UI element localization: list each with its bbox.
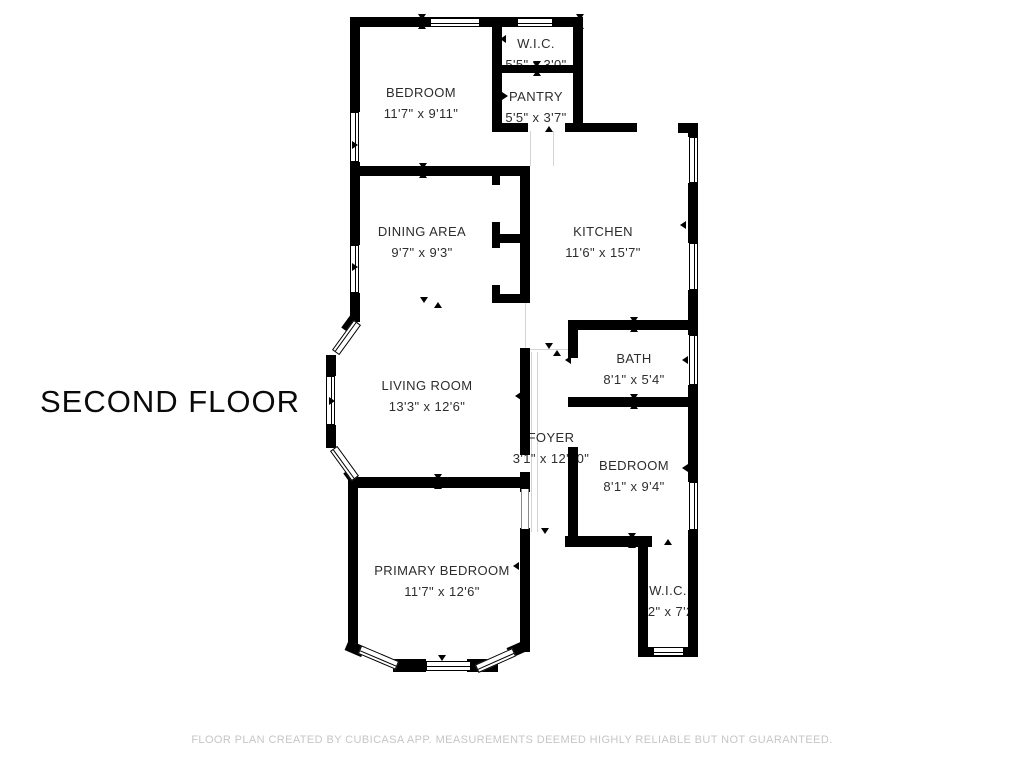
footer-disclaimer: FLOOR PLAN CREATED BY CUBICASA APP. MEAS… xyxy=(0,734,1024,746)
room-name: BATH xyxy=(603,348,664,369)
door-marker xyxy=(352,561,358,569)
opening-marker xyxy=(553,350,561,356)
window xyxy=(350,112,359,162)
window-marker xyxy=(682,464,688,472)
room-dims: 9'7" x 9'3" xyxy=(378,242,466,263)
room-name: W.I.C. xyxy=(505,33,566,54)
room-dims: 13'3" x 12'6" xyxy=(381,396,472,417)
wall-segment xyxy=(520,528,530,652)
room-label-kitchen: KITCHEN 11'6" x 15'7" xyxy=(565,221,641,263)
opening-marker xyxy=(434,483,442,489)
room-name: KITCHEN xyxy=(565,221,641,242)
opening-marker xyxy=(420,297,428,303)
window xyxy=(653,647,684,656)
wall-segment xyxy=(492,294,520,303)
window xyxy=(689,335,698,385)
window xyxy=(689,137,698,183)
wall-segment xyxy=(688,123,698,137)
floor-title: SECOND FLOOR xyxy=(40,384,300,420)
window xyxy=(358,645,399,669)
wall-segment xyxy=(350,17,360,112)
door-marker xyxy=(664,539,672,545)
opening-marker xyxy=(630,403,638,409)
wall-segment xyxy=(326,425,336,448)
window-marker xyxy=(352,263,358,271)
opening-marker xyxy=(438,655,446,661)
room-dims: 11'7" x 9'11" xyxy=(384,103,459,124)
wall-segment xyxy=(350,166,530,176)
door-marker xyxy=(500,35,506,43)
wall-segment xyxy=(492,234,520,243)
window-marker xyxy=(329,397,335,405)
opening-marker xyxy=(533,70,541,76)
room-label-living: LIVING ROOM 13'3" x 12'6" xyxy=(381,375,472,417)
room-label-bath: BATH 8'1" x 5'4" xyxy=(603,348,664,390)
wall-segment xyxy=(565,536,652,547)
wall-segment xyxy=(565,123,637,132)
opening-marker xyxy=(434,474,442,480)
opening-marker xyxy=(418,14,426,20)
wall-segment xyxy=(688,290,698,335)
wall-segment xyxy=(573,17,583,131)
window xyxy=(517,18,553,27)
wall-segment xyxy=(492,123,528,132)
wall-segment xyxy=(492,172,500,185)
room-dims: 11'6" x 15'7" xyxy=(565,242,641,263)
opening-marker xyxy=(630,394,638,400)
door-marker xyxy=(570,461,576,469)
floor-plan: SECOND FLOOR FLOOR PLAN CREATED BY CUBIC… xyxy=(0,0,1024,768)
door-marker xyxy=(515,392,521,400)
wall-segment xyxy=(688,183,698,243)
wall-segment xyxy=(688,530,698,657)
window xyxy=(426,661,471,671)
opening-line xyxy=(530,349,568,350)
room-name: PRIMARY BEDROOM xyxy=(374,560,510,581)
wall-segment xyxy=(638,547,648,657)
door-marker xyxy=(502,92,508,100)
window-marker xyxy=(352,141,358,149)
opening-marker xyxy=(576,14,584,20)
door-marker xyxy=(565,356,571,364)
window-marker xyxy=(682,356,688,364)
opening-marker xyxy=(630,326,638,332)
wall-segment xyxy=(326,355,336,376)
wall-segment xyxy=(520,348,530,455)
room-label-bedroom-1: BEDROOM 11'7" x 9'11" xyxy=(384,82,459,124)
room-label-dining: DINING AREA 9'7" x 9'3" xyxy=(378,221,466,263)
wall-segment xyxy=(688,385,698,482)
opening-line xyxy=(553,131,554,166)
opening-line xyxy=(525,303,526,348)
opening-marker xyxy=(419,172,427,178)
door-marker xyxy=(545,126,553,132)
opening-marker xyxy=(419,163,427,169)
room-dims: 8'1" x 5'4" xyxy=(603,369,664,390)
wall-segment xyxy=(568,330,578,358)
opening-marker xyxy=(628,533,636,539)
window xyxy=(689,482,698,530)
room-name: BEDROOM xyxy=(384,82,459,103)
room-dims: 8'1" x 9'4" xyxy=(599,476,669,497)
door-marker xyxy=(513,562,519,570)
door-marker xyxy=(680,221,686,229)
window xyxy=(689,243,698,290)
door-opening xyxy=(521,489,529,529)
room-label-primary-bedroom: PRIMARY BEDROOM 11'7" x 12'6" xyxy=(374,560,510,602)
wall-segment xyxy=(350,176,360,245)
opening-marker xyxy=(418,23,426,29)
room-name: BEDROOM xyxy=(599,455,669,476)
door-marker xyxy=(521,442,527,450)
window xyxy=(430,18,480,27)
opening-marker xyxy=(576,23,584,29)
room-name: LIVING ROOM xyxy=(381,375,472,396)
wall-segment xyxy=(520,166,530,303)
opening-marker xyxy=(630,317,638,323)
room-dims: 11'7" x 12'6" xyxy=(374,581,510,602)
opening-marker xyxy=(628,542,636,548)
room-name: DINING AREA xyxy=(378,221,466,242)
opening-line xyxy=(530,131,531,166)
room-name: PANTRY xyxy=(505,86,566,107)
room-label-bedroom-2: BEDROOM 8'1" x 9'4" xyxy=(599,455,669,497)
opening-marker xyxy=(533,61,541,67)
door-marker xyxy=(541,528,549,534)
opening-marker xyxy=(545,343,553,349)
opening-marker xyxy=(434,302,442,308)
room-label-pantry: PANTRY 5'5" x 3'7" xyxy=(505,86,566,128)
